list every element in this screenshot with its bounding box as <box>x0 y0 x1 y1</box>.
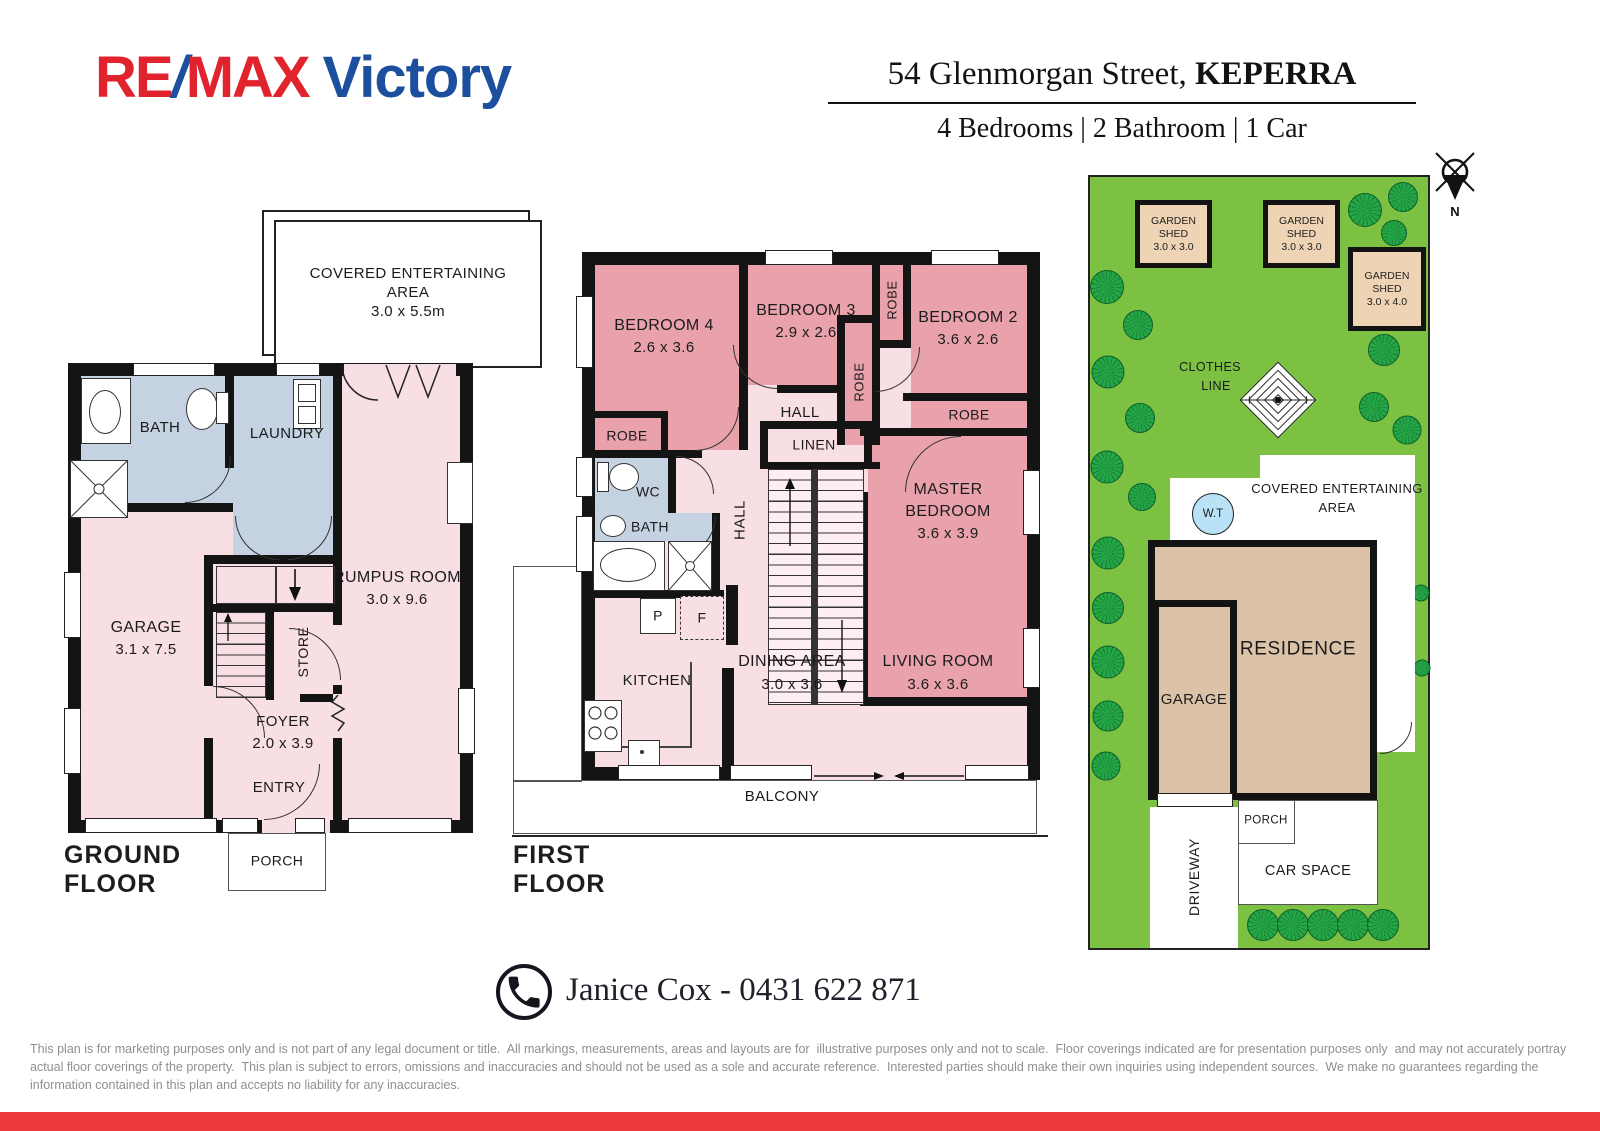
first-floor-title: FIRST FLOOR <box>513 841 605 899</box>
site-right-path <box>1377 540 1415 752</box>
window <box>730 765 812 780</box>
gf-covered-area-label: COVERED ENTERTAINING <box>310 266 507 283</box>
address-suburb: KEPERRA <box>1195 56 1356 92</box>
logo-max: MAX <box>186 45 309 110</box>
address-street: 54 Glenmorgan Street, <box>888 56 1195 92</box>
window <box>133 363 215 376</box>
window <box>64 572 81 638</box>
room-label-linen: LINEN <box>792 437 835 452</box>
wall <box>860 697 1027 706</box>
room-label-bedroom2: BEDROOM 2 <box>918 309 1018 327</box>
window <box>1023 470 1040 535</box>
room-label-hall: HALL <box>732 500 749 540</box>
wall <box>726 585 738 645</box>
shower <box>668 541 712 591</box>
stove <box>584 700 622 752</box>
room-label-dining: DINING AREA <box>738 653 846 671</box>
wall <box>582 411 668 418</box>
site-driveway-label: DRIVEWAY <box>1186 838 1202 916</box>
gf-covered-area-label2: AREA <box>387 285 429 302</box>
window <box>576 296 593 368</box>
room-label-porch: PORCH <box>251 853 304 868</box>
tree-icon <box>1388 182 1418 212</box>
wall <box>266 612 274 700</box>
kitchen-sink <box>628 740 660 767</box>
site-garage-door <box>1157 793 1233 807</box>
property-address: 54 Glenmorgan Street, KEPERRA <box>828 56 1416 104</box>
wall <box>760 421 768 469</box>
room-label-kitchen: KITCHEN <box>623 673 692 690</box>
compass-north-label: N <box>1450 204 1459 219</box>
tree-icon <box>1092 356 1125 389</box>
sliding-door-arrows <box>814 768 964 786</box>
label-fridge: F <box>698 610 707 625</box>
room-label-laundry: LAUNDRY <box>250 426 324 443</box>
room-dim-garage: 3.1 x 7.5 <box>115 642 176 659</box>
window <box>458 688 475 754</box>
shed-label: SHED <box>1287 228 1316 241</box>
tree-icon <box>1092 646 1125 679</box>
site-porch-label: PORCH <box>1244 815 1288 828</box>
property-header: 54 Glenmorgan Street, KEPERRA 4 Bedrooms… <box>828 56 1416 145</box>
room-dim-living: 3.6 x 3.6 <box>907 677 968 694</box>
window <box>576 516 593 572</box>
room-label-bedroom3: BEDROOM 3 <box>756 302 856 320</box>
wall <box>864 421 872 469</box>
shed-dim: 3.0 x 4.0 <box>1367 296 1407 309</box>
site-car-space-label: CAR SPACE <box>1265 864 1351 880</box>
water-tank-label: W.T <box>1203 508 1223 520</box>
room-label-robe: ROBE <box>885 280 900 319</box>
toilet <box>186 388 218 430</box>
laundry-tub <box>293 379 321 429</box>
room-label-garage: GARAGE <box>111 619 182 637</box>
room-dim-foyer: 2.0 x 3.9 <box>252 736 313 753</box>
tree-icon <box>1381 220 1407 246</box>
bath-sink <box>600 515 626 537</box>
window <box>765 250 833 265</box>
agent-contact: Janice Cox - 0431 622 871 <box>566 972 921 1009</box>
room-dim-bedroom3: 2.9 x 2.6 <box>775 325 836 342</box>
tree-icon <box>1128 483 1156 511</box>
room-label-balcony: BALCONY <box>745 789 820 806</box>
shed-label: SHED <box>1372 283 1401 296</box>
wall <box>760 421 880 429</box>
shed-label: GARDEN <box>1151 215 1196 228</box>
tree-icon <box>1092 537 1125 570</box>
site-covered-area <box>1260 455 1415 540</box>
clothes-line-icon <box>1238 360 1318 445</box>
site-covered-label: COVERED ENTERTAINING <box>1251 482 1422 496</box>
toilet-cistern <box>597 462 609 492</box>
tree-icon <box>1359 392 1389 422</box>
toilet-cistern <box>216 392 229 424</box>
wall <box>860 428 1027 436</box>
shed-label: GARDEN <box>1279 215 1324 228</box>
window <box>222 818 258 833</box>
window <box>348 818 452 833</box>
ground-floor-title: GROUND FLOOR <box>64 841 181 899</box>
french-doors-icon <box>338 364 460 407</box>
fireplace-recess <box>447 462 473 524</box>
label-pantry: P <box>653 608 663 623</box>
zigzag-icon <box>330 695 346 742</box>
disclaimer-line: information contained in this plan and a… <box>30 1078 460 1092</box>
window <box>295 818 325 833</box>
wall <box>760 462 880 469</box>
tree-icon <box>1414 660 1431 677</box>
window <box>965 765 1029 780</box>
bathtub <box>593 541 665 591</box>
tree-icon <box>1307 909 1339 941</box>
stair-arrow-down <box>288 567 302 608</box>
tree-icon <box>1123 310 1153 340</box>
logo-victory: Victory <box>323 45 512 110</box>
tree-icon <box>1091 451 1124 484</box>
wall <box>903 265 911 348</box>
site-residence-label: RESIDENCE <box>1240 640 1356 661</box>
compass-icon: N <box>1432 146 1478 225</box>
tree-icon <box>1413 585 1430 602</box>
disclaimer-line: actual floor coverings of the property. … <box>30 1060 1539 1074</box>
tree-icon <box>1367 909 1399 941</box>
tree-icon <box>1093 701 1124 732</box>
toilet <box>609 463 639 491</box>
tree-icon <box>1092 592 1124 624</box>
staircase-landing-line <box>275 566 277 604</box>
stair-arrow-up <box>222 613 234 648</box>
room-label-master2: BEDROOM <box>905 503 990 521</box>
room-dim-dining: 3.0 x 3.6 <box>761 677 822 694</box>
window <box>1023 628 1040 688</box>
tree-icon <box>1090 270 1124 304</box>
window <box>576 457 593 497</box>
logo-re: RE <box>95 45 172 110</box>
room-dim-bedroom2: 3.6 x 2.6 <box>937 332 998 349</box>
room-label-wc: WC <box>636 484 660 499</box>
tree-icon <box>1393 416 1422 445</box>
room-label-entry: ENTRY <box>253 780 306 797</box>
wall <box>668 450 676 513</box>
tree-icon <box>1277 909 1309 941</box>
garden-shed: GARDEN SHED 3.0 x 3.0 <box>1263 200 1340 268</box>
shed-label: GARDEN <box>1365 270 1410 283</box>
ff-bedroom2 <box>911 265 1027 393</box>
tree-icon <box>1092 752 1121 781</box>
room-label-rumpus: RUMPUS ROOM <box>333 569 461 587</box>
room-label-robe: ROBE <box>852 362 867 401</box>
tree-icon <box>1247 909 1279 941</box>
wall <box>777 385 845 393</box>
site-garage-label: GARAGE <box>1161 692 1228 709</box>
bottom-brand-bar <box>0 1112 1600 1131</box>
shed-dim: 3.0 x 3.0 <box>1281 241 1321 254</box>
room-dim-rumpus: 3.0 x 9.6 <box>366 592 427 609</box>
property-summary: 4 Bedrooms | 2 Bathroom | 1 Car <box>828 113 1416 145</box>
logo-slash: / <box>172 45 186 110</box>
room-label-bedroom4: BEDROOM 4 <box>614 317 714 335</box>
floor-plan-page: RE/MAXVictory 54 Glenmorgan Street, KEPE… <box>0 0 1600 1131</box>
garden-shed: GARDEN SHED 3.0 x 3.0 <box>1135 200 1212 268</box>
stair-arrow-up <box>784 478 796 553</box>
remax-victory-logo: RE/MAXVictory <box>95 48 511 108</box>
site-covered-label2: AREA <box>1318 501 1355 515</box>
wall <box>213 604 338 612</box>
wall <box>661 411 668 456</box>
ff-balcony-side <box>513 566 582 782</box>
garage-door-window <box>85 818 217 833</box>
bath-sink <box>89 390 121 434</box>
shed-dim: 3.0 x 3.0 <box>1153 241 1193 254</box>
room-label-bath: BATH <box>631 519 669 534</box>
room-label-master: MASTER <box>913 481 982 499</box>
room-dim-master: 3.6 x 3.9 <box>917 526 978 543</box>
wall <box>722 668 734 767</box>
tree-icon <box>1125 403 1155 433</box>
water-tank: W.T <box>1192 493 1234 535</box>
wall <box>204 555 213 686</box>
garden-shed: GARDEN SHED 3.0 x 4.0 <box>1348 247 1426 331</box>
tree-icon <box>1368 334 1400 366</box>
room-label-hall: HALL <box>780 405 819 422</box>
shed-label: SHED <box>1159 228 1188 241</box>
tree-icon <box>1348 193 1382 227</box>
clothes-line-label: CLOTHES <box>1179 361 1241 375</box>
window <box>64 708 81 774</box>
window <box>618 765 720 780</box>
first-floor-rule <box>512 835 1048 837</box>
tree-icon <box>1337 909 1369 941</box>
room-label-living: LIVING ROOM <box>882 653 993 671</box>
gf-covered-area-dim: 3.0 x 5.5m <box>371 304 445 321</box>
window <box>931 250 999 265</box>
room-label-robe: ROBE <box>606 428 647 443</box>
room-label-foyer: FOYER <box>256 714 310 731</box>
disclaimer-line: This plan is for marketing purposes only… <box>30 1042 1566 1056</box>
room-dim-bedroom4: 2.6 x 3.6 <box>633 340 694 357</box>
room-label-bath: BATH <box>140 420 181 437</box>
window <box>276 363 320 376</box>
shower <box>70 460 128 518</box>
wall <box>903 393 1027 401</box>
clothes-line-label2: LINE <box>1201 380 1230 394</box>
room-label-robe: ROBE <box>948 407 989 422</box>
phone-icon <box>494 962 554 1027</box>
